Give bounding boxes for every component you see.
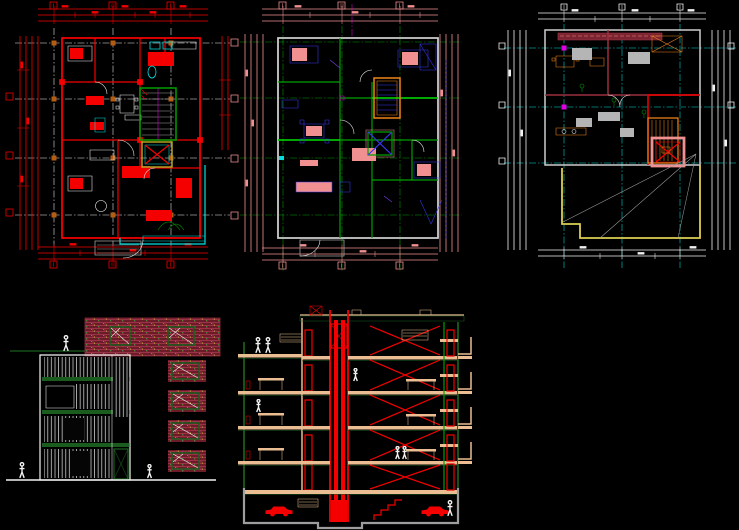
section[interactable] <box>238 306 472 528</box>
section-floor-slabs[interactable] <box>244 356 458 495</box>
plan1-elevator[interactable] <box>142 142 172 167</box>
cad-canvas[interactable] <box>0 0 739 530</box>
plan1-dimension-lines-bottom[interactable] <box>38 244 208 269</box>
plan2-dimension-lines-top[interactable] <box>262 6 438 25</box>
plan1-dimension-lines-right[interactable] <box>219 36 231 150</box>
elevation-upper-brick-block[interactable] <box>85 318 220 356</box>
plan2-dimension-lines-right[interactable] <box>440 34 458 252</box>
plan1-stair[interactable] <box>140 88 176 140</box>
plan1-dimension-lines-left[interactable] <box>6 36 38 250</box>
plan2-elevator[interactable] <box>366 130 394 157</box>
plan3-grid-bubbles-top[interactable] <box>561 4 683 10</box>
plan3-furniture[interactable] <box>552 36 682 137</box>
plan1-walls[interactable] <box>60 38 202 238</box>
plan3-elevator[interactable] <box>652 138 684 166</box>
plan3-dimension-lines-right[interactable] <box>712 30 734 250</box>
section-roof[interactable] <box>300 306 464 321</box>
elevation-main-facade[interactable] <box>40 355 130 480</box>
plan3-grid-lines <box>504 24 736 268</box>
floor-plan-3[interactable] <box>499 4 736 268</box>
elevation[interactable] <box>6 318 220 480</box>
elevation-person-roof <box>64 336 69 351</box>
section-right-balconies[interactable] <box>458 337 472 464</box>
plan3-dimension-lines-left[interactable] <box>499 30 526 250</box>
cad-sheet <box>0 0 739 530</box>
elevation-right-wing-windows[interactable] <box>168 360 206 472</box>
plan1-grid-lines <box>15 28 230 246</box>
elevation-person-left <box>20 463 25 478</box>
plan2-grid-lines <box>240 26 462 272</box>
floor-plan-2[interactable] <box>231 2 462 272</box>
plan2-outer-wall[interactable] <box>278 38 438 238</box>
elevation-person-right <box>147 465 151 478</box>
plan1-grid-bubbles-top[interactable] <box>50 2 174 9</box>
plan2-dimension-lines-left[interactable] <box>231 34 263 252</box>
plan1-dimension-lines-top[interactable] <box>38 6 208 25</box>
section-left-wing[interactable] <box>238 318 302 490</box>
plan3-grid-node-magenta <box>562 46 567 51</box>
plan2-inner-walls[interactable] <box>278 38 438 238</box>
plan3-grid-node-magenta-2 <box>562 105 567 110</box>
plan2-furniture[interactable] <box>279 44 442 224</box>
plan2-dimension-lines-bottom[interactable] <box>262 245 438 270</box>
section-corridor-doors[interactable] <box>305 330 312 490</box>
plan3-dimension-lines-bottom[interactable] <box>538 247 706 260</box>
plan3-dimension-lines-top[interactable] <box>538 10 706 23</box>
section-right-walls[interactable] <box>444 322 458 490</box>
floor-plan-1[interactable] <box>6 2 231 268</box>
